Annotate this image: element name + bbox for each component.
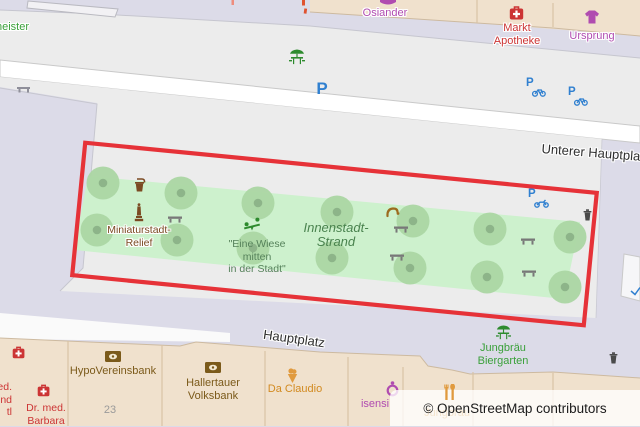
biergarten-icon	[495, 325, 512, 340]
bank-icon	[205, 362, 221, 373]
poi-label-eine-wiese: "Eine Wiese mitten in der Stadt"	[228, 238, 285, 276]
label-line: Barbara	[26, 415, 66, 427]
clipped-map-marks	[232, 0, 308, 14]
park-name-innenstadt-strand: Innenstadt- Strand	[303, 221, 368, 249]
restaurant-icon	[443, 384, 456, 400]
poi-label-jungbraeu-biergarten: Jungbräu Biergarten	[478, 342, 529, 367]
label-line: mitten	[228, 251, 285, 264]
poi-label-clipped-left: ed. nd tl	[0, 381, 12, 419]
label-line: Strand	[303, 235, 368, 249]
pharmacy-icon	[509, 6, 525, 21]
parking-icon: P	[316, 83, 327, 96]
ice-cream-icon	[287, 368, 298, 383]
label-line: tl	[0, 406, 12, 419]
poi-label-osiander: Osiander	[363, 7, 408, 20]
poi-label-isensi: isensi	[361, 398, 389, 411]
poi-label-miniaturstadt-relief: Miniaturstadt- Relief	[107, 224, 171, 249]
label-line: Hallertauer	[186, 377, 240, 390]
label-line: Apotheke	[494, 35, 540, 48]
bookshop-icon	[380, 0, 396, 6]
building-right-edge	[621, 254, 640, 301]
poi-label-hypovereinsbank: HypoVereinsbank	[70, 365, 156, 378]
label-line: "Eine Wiese	[228, 238, 285, 251]
map-canvas[interactable]: neister Osiander Markt Apotheke Ursprung…	[0, 0, 640, 426]
monument-icon	[134, 203, 144, 222]
bench-icon	[521, 237, 535, 245]
bicycle-parking-icon: P	[526, 77, 552, 99]
label-line: Innenstadt-	[303, 221, 368, 235]
label-line: Biergarten	[478, 355, 529, 368]
label-line: Miniaturstadt-	[107, 224, 171, 237]
map-base-svg	[0, 0, 640, 426]
poi-label-ursprung: Ursprung	[569, 30, 614, 43]
label-line: Markt	[494, 22, 540, 35]
label-line: in der Stadt"	[228, 263, 285, 276]
label-line: Relief	[107, 237, 171, 250]
bench-icon	[168, 215, 182, 223]
poi-label-dr-med-barbara: Dr. med. Barbara	[26, 402, 66, 427]
bench-icon	[522, 269, 536, 277]
clothes-shop-icon	[584, 10, 600, 24]
playground-seesaw-icon	[243, 216, 261, 232]
bicycle-parking-icon: P	[568, 86, 594, 108]
attribution-link[interactable]: © OpenStreetMap contributors	[423, 401, 606, 416]
poi-label-da-claudio: Da Claudio	[268, 383, 322, 396]
playground-springrider-icon	[386, 205, 400, 219]
bench-icon	[394, 225, 408, 233]
poi-label-neister: neister	[0, 21, 29, 34]
bench-icon	[390, 253, 404, 261]
road-hauptplatz	[0, 313, 230, 342]
waste-basket-icon	[583, 209, 592, 221]
drinking-fountain-icon	[133, 177, 147, 192]
label-line: ed.	[0, 381, 12, 394]
label-line: Dr. med.	[26, 402, 66, 415]
house-number-23: 23	[104, 404, 116, 417]
label-line: Volksbank	[186, 390, 240, 403]
motorcycle-parking-icon: P	[528, 188, 554, 210]
label-line: Jungbräu	[478, 342, 529, 355]
first-aid-icon	[12, 346, 26, 360]
poi-label-hallertauer-volksbank: Hallertauer Volksbank	[186, 377, 240, 402]
waste-basket-icon	[609, 352, 618, 364]
poi-label-markt-apotheke: Markt Apotheke	[494, 22, 540, 47]
picnic-table-icon	[288, 49, 306, 65]
label-line: nd	[0, 394, 12, 407]
doctor-icon	[37, 384, 51, 398]
attribution-bar: © OpenStreetMap contributors	[390, 390, 640, 426]
bank-icon	[105, 351, 121, 362]
